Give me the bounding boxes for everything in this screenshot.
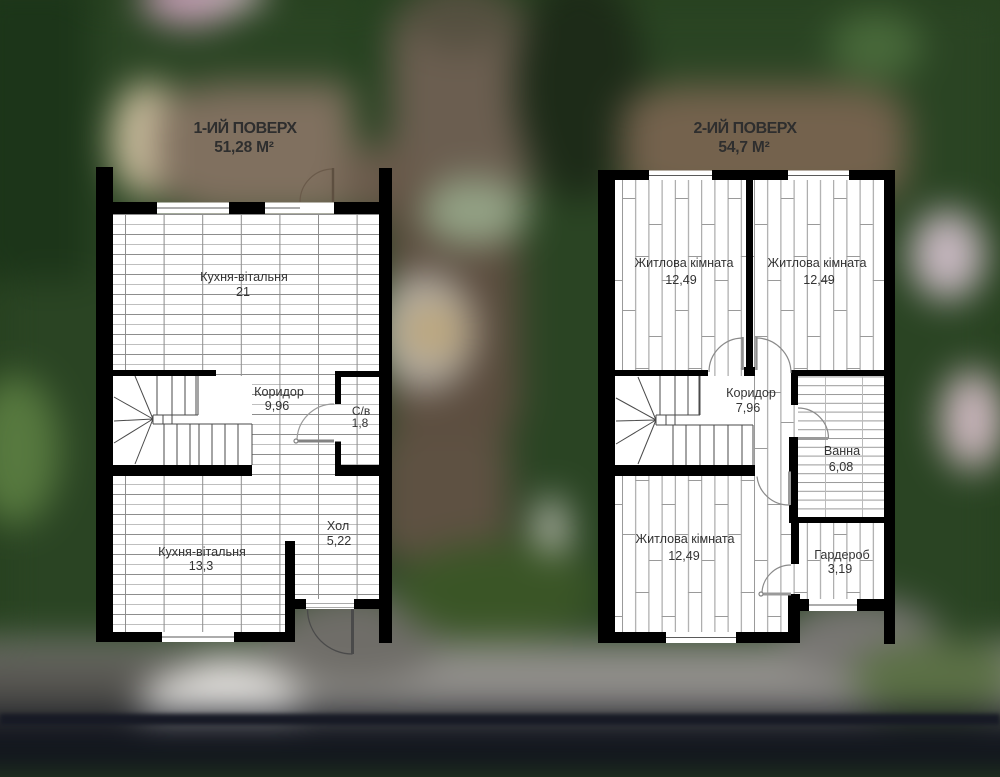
svg-text:Гардероб: Гардероб bbox=[814, 548, 869, 562]
svg-text:12,49: 12,49 bbox=[665, 273, 697, 287]
svg-text:2-ИЙ ПОВЕРХ: 2-ИЙ ПОВЕРХ bbox=[693, 118, 797, 137]
svg-text:12,49: 12,49 bbox=[803, 273, 835, 287]
svg-text:Коридор: Коридор bbox=[254, 385, 304, 399]
svg-text:Житлова кімната: Житлова кімната bbox=[636, 532, 735, 546]
svg-text:3,19: 3,19 bbox=[828, 562, 853, 576]
svg-text:54,7 М²: 54,7 М² bbox=[718, 139, 769, 156]
svg-text:Кухня-вітальня: Кухня-вітальня bbox=[200, 270, 288, 284]
svg-text:Кухня-вітальня: Кухня-вітальня bbox=[158, 545, 246, 559]
svg-text:1,8: 1,8 bbox=[352, 416, 369, 430]
svg-text:Коридор: Коридор bbox=[726, 386, 776, 400]
svg-text:13,3: 13,3 bbox=[189, 559, 214, 573]
svg-text:5,22: 5,22 bbox=[327, 534, 352, 548]
svg-text:9,96: 9,96 bbox=[265, 399, 290, 413]
svg-text:7,96: 7,96 bbox=[736, 401, 761, 415]
svg-text:21: 21 bbox=[236, 285, 250, 299]
svg-text:6,08: 6,08 bbox=[829, 460, 854, 474]
svg-text:51,28 М²: 51,28 М² bbox=[214, 139, 274, 156]
svg-text:12,49: 12,49 bbox=[668, 549, 700, 563]
svg-text:1-ИЙ ПОВЕРХ: 1-ИЙ ПОВЕРХ bbox=[193, 118, 297, 137]
svg-text:Житлова кімната: Житлова кімната bbox=[768, 256, 867, 270]
svg-text:Хол: Хол bbox=[327, 519, 349, 533]
svg-text:Житлова кімната: Житлова кімната bbox=[635, 256, 734, 270]
svg-text:Ванна: Ванна bbox=[824, 444, 860, 458]
